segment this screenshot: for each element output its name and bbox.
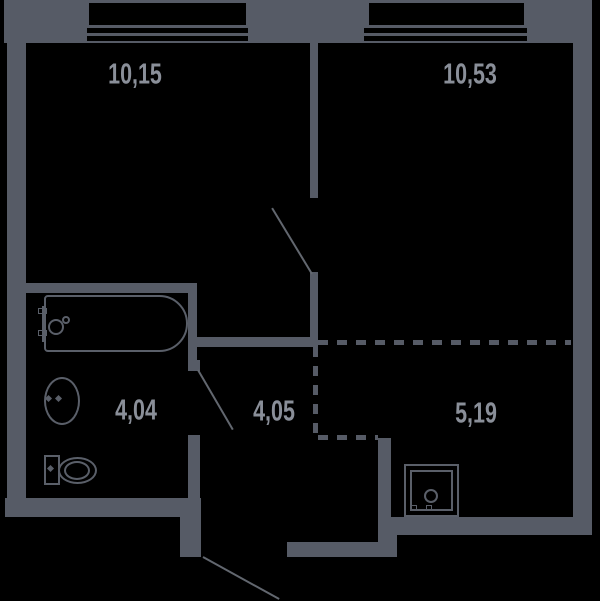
kitchen-sink-drain-icon (424, 489, 438, 503)
toilet-bowl-inner-icon (64, 461, 90, 480)
wall-room-divider-upper (310, 43, 318, 198)
door-swing-entry (203, 556, 280, 600)
wall-bathroom-top (26, 283, 197, 293)
wall-bottom-left (5, 498, 180, 517)
room-area-label-hallway: 4,05 (253, 396, 295, 429)
kitchen-zone-dashed-boundary-bottom (318, 435, 378, 440)
room-area-label-bathroom: 4,04 (115, 395, 157, 428)
door-swing-bathroom (197, 369, 234, 430)
window-top-right-icon (369, 3, 524, 25)
window-top-left-icon (89, 3, 246, 25)
wall-kitchen-bottom (391, 517, 592, 535)
bathtub-drain-icon (62, 316, 70, 324)
room-area-label-kitchen: 5,19 (455, 398, 497, 431)
wall-room-divider-lower (310, 272, 318, 347)
wall-bathroom-right (188, 293, 197, 360)
room-area-label-top-left: 10,15 (108, 59, 162, 92)
wall-entry-bottom (287, 542, 397, 557)
window-top-right-sill-line (364, 28, 527, 33)
window-top-right-sill-line (364, 36, 527, 41)
kitchen-zone-dashed-boundary-left (313, 347, 318, 435)
kitchen-zone-dashed-boundary-top (318, 340, 571, 345)
wall-right-exterior (573, 43, 592, 535)
kitchen-sink-knob-icon (411, 505, 417, 511)
door-swing-room-divider (271, 208, 313, 275)
wall-entry-left-foot (180, 498, 201, 557)
floor-plan: 10,15 10,53 4,04 4,05 5,19 (0, 0, 600, 601)
room-area-label-top-right: 10,53 (443, 59, 497, 92)
kitchen-sink-knob-icon (426, 505, 432, 511)
window-top-left-sill-line (87, 36, 248, 41)
wall-hallway-top (197, 337, 310, 347)
wall-left-exterior (7, 43, 26, 498)
bathtub-faucet-handle-icon (38, 308, 47, 314)
wall-bathroom-door-column (188, 435, 200, 498)
bathtub-faucet-handle-icon (38, 330, 47, 336)
window-top-left-sill-line (87, 28, 248, 33)
